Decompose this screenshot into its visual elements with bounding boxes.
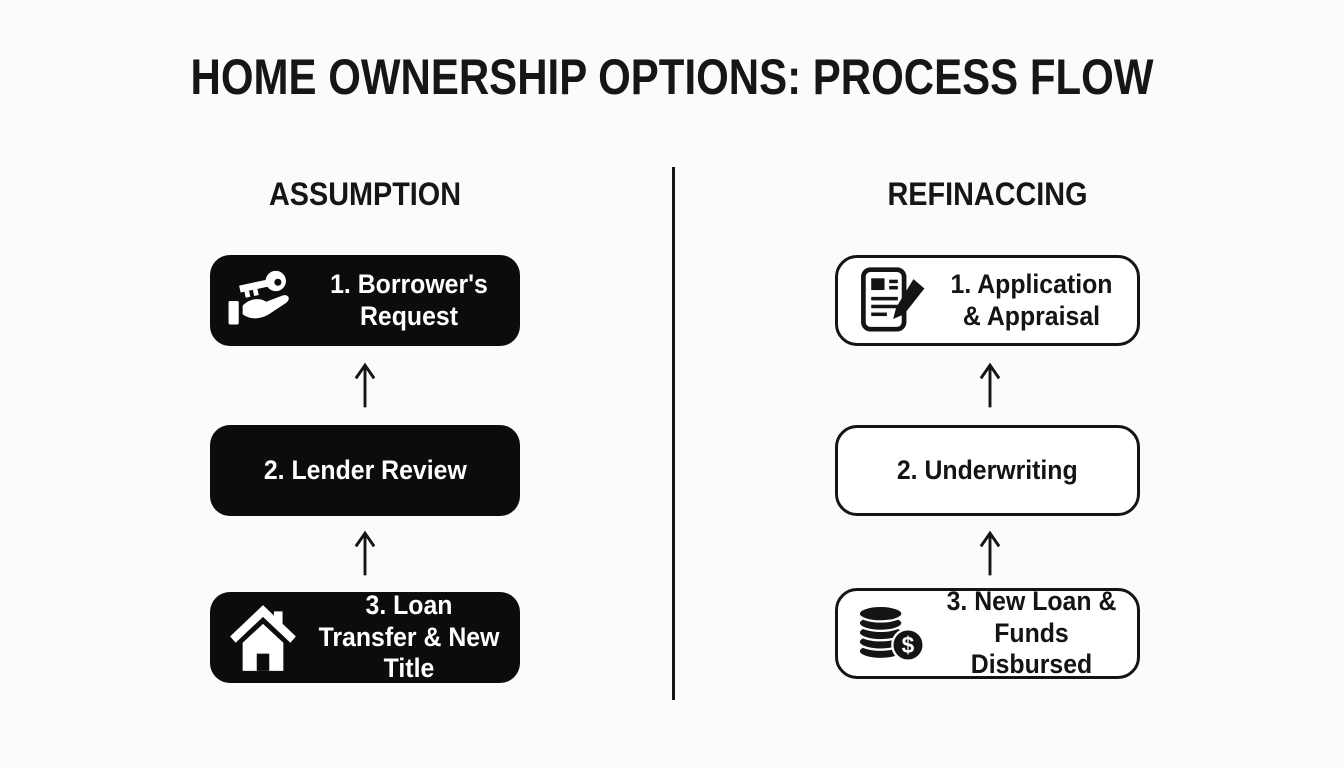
house-icon — [221, 602, 305, 674]
svg-text:$: $ — [902, 631, 915, 657]
page-title: HOME OWNERSHIP OPTIONS: PROCESS FLOW — [108, 50, 1237, 105]
column-divider — [672, 167, 675, 700]
step-box-assumption-3: 3. Loan Transfer & New Title — [210, 592, 520, 683]
coins-dollar-icon: $ — [848, 598, 932, 670]
step-label: 2. Underwriting — [897, 455, 1078, 487]
column-header-refinancing: REFINACCING — [850, 176, 1125, 213]
hand-key-icon — [221, 265, 305, 337]
step-box-assumption-1: 1. Borrower's Request — [210, 255, 520, 346]
step-label: 3. New Loan & Funds Disbursed — [944, 586, 1120, 682]
column-header-assumption: ASSUMPTION — [226, 176, 505, 213]
document-pencil-icon — [848, 265, 932, 337]
step-box-refinancing-2: 2. Underwriting — [835, 425, 1140, 516]
step-box-refinancing-3: $ 3. New Loan & Funds Disbursed — [835, 588, 1140, 679]
step-label: 3. Loan Transfer & New Title — [317, 590, 501, 686]
step-label: 2. Lender Review — [264, 455, 467, 487]
diagram-canvas: HOME OWNERSHIP OPTIONS: PROCESS FLOW ASS… — [0, 0, 1344, 768]
step-box-refinancing-1: 1. Application & Appraisal — [835, 255, 1140, 346]
up-arrow-icon — [975, 361, 1005, 409]
step-label: 1. Borrower's Request — [317, 269, 501, 333]
up-arrow-icon — [350, 361, 380, 409]
up-arrow-icon — [350, 529, 380, 577]
up-arrow-icon — [975, 529, 1005, 577]
step-label: 1. Application & Appraisal — [944, 269, 1120, 333]
step-box-assumption-2: 2. Lender Review — [210, 425, 520, 516]
